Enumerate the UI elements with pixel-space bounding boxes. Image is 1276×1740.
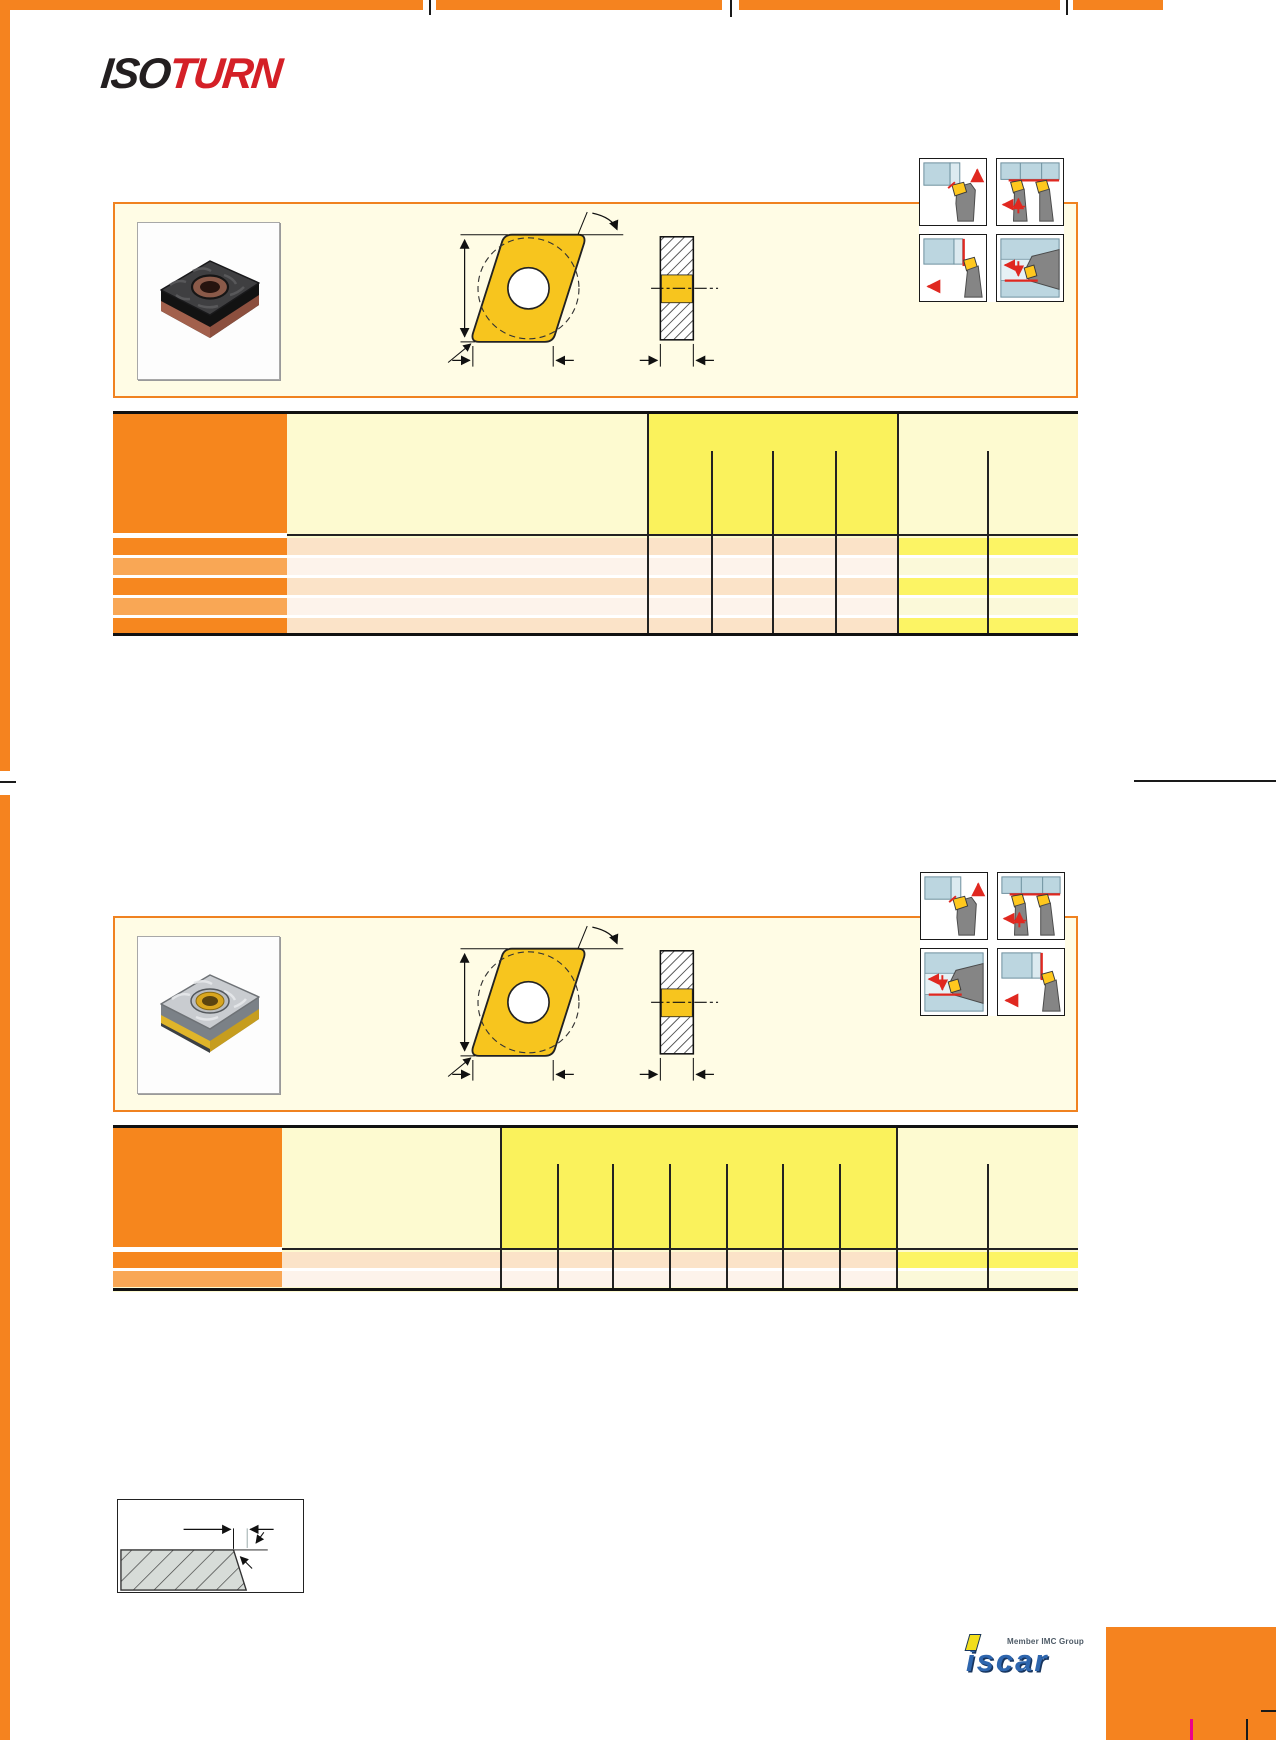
table-1-subdivider: [711, 451, 713, 633]
crop-mark-top-1: [429, 0, 431, 15]
silver-insert-with-yellow-bore-photo: [137, 936, 280, 1094]
internal-profiling-icon: [920, 948, 988, 1016]
table-1-divider: [897, 414, 899, 633]
table-2-header-yellow-group: [500, 1128, 896, 1248]
table-1-divider: [647, 414, 649, 633]
double-tool-turning-icon: [997, 872, 1065, 940]
crop-mark-right: [1134, 780, 1276, 782]
spec-table-2: [113, 1125, 1078, 1292]
table-1-header-underline: [287, 534, 1078, 536]
crop-mark-top-3: [1066, 0, 1068, 15]
facing-left-icon: [919, 234, 987, 302]
crop-mark-bottom-h: [1261, 1710, 1276, 1712]
external-turning-up-icon: [919, 158, 987, 226]
crop-mark-top-2: [730, 0, 732, 17]
table-2-divider: [500, 1128, 502, 1288]
rhombic-insert-front-and-side-view-drawing: [415, 210, 745, 380]
crop-mark-left: [0, 781, 16, 783]
isoturn-logo: ISOTURN: [98, 50, 283, 99]
iscar-logo: Member IMC Group iscar: [966, 1637, 1086, 1689]
top-registration-strip: [0, 0, 1163, 10]
external-turning-up-icon: [920, 872, 988, 940]
application-icons-grid-1: [919, 158, 1064, 302]
table-2-subdivider: [557, 1164, 559, 1288]
left-registration-strip: [0, 0, 10, 1740]
table-row: [113, 538, 1078, 555]
iscar-wordmark: iscar: [966, 1643, 1048, 1678]
double-tool-turning-icon: [996, 158, 1064, 226]
table-2-bottom-border: [113, 1288, 1078, 1291]
catalog-page: ISOTURN: [0, 0, 1276, 1740]
table-2-subdivider: [669, 1164, 671, 1288]
left-strip-gap: [0, 771, 10, 795]
isoturn-logo-turn: TURN: [167, 50, 283, 98]
black-insert-with-copper-layers-photo: [137, 222, 280, 380]
table-1-subdivider: [772, 451, 774, 633]
table-2-subdivider: [612, 1164, 614, 1288]
table-1-subdivider: [835, 451, 837, 633]
table-1-bottom-border: [113, 633, 1078, 636]
table-row: [113, 558, 1078, 575]
table-2-subdivider: [987, 1164, 989, 1288]
table-2-subdivider: [782, 1164, 784, 1288]
table-2-header-orange-cell: [113, 1128, 282, 1247]
table-row: [113, 578, 1078, 595]
spec-table-1: [113, 411, 1078, 636]
table-row: [113, 1271, 1078, 1287]
crop-mark-bottom: [1246, 1719, 1248, 1740]
table-1-subdivider: [987, 451, 989, 633]
chamfer-width-and-angle-dimension-diagram: [117, 1499, 304, 1593]
table-row: [113, 618, 1078, 633]
table-1-header-orange-cell: [113, 414, 287, 533]
table-2-subdivider: [839, 1164, 841, 1288]
application-icons-grid-2: [920, 872, 1065, 1016]
rhombic-insert-front-and-side-view-drawing: [415, 924, 745, 1094]
table-2-header-underline: [282, 1248, 1078, 1250]
table-row: [113, 598, 1078, 615]
table-2-divider: [896, 1128, 898, 1288]
crop-mark-magenta: [1190, 1719, 1193, 1740]
external-facing-left-icon: [997, 948, 1065, 1016]
table-2-subdivider: [726, 1164, 728, 1288]
isoturn-logo-iso: ISO: [99, 50, 172, 98]
table-row: [113, 1252, 1078, 1268]
internal-boring-icon: [996, 234, 1064, 302]
